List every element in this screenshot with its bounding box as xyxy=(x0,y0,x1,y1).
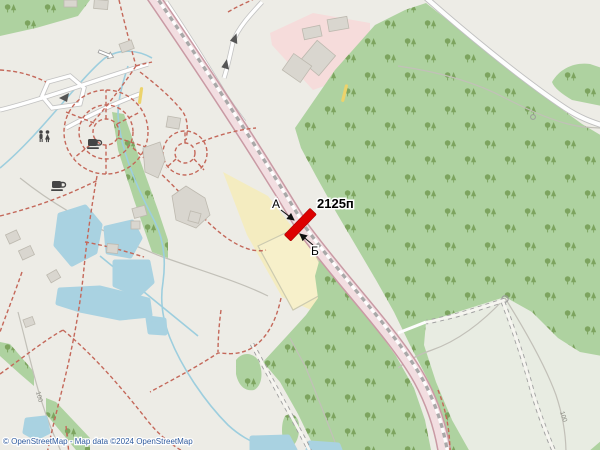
map-attribution[interactable]: © OpenStreetMap - Map data ©2024 OpenStr… xyxy=(3,437,193,446)
side-a-label: А xyxy=(272,197,280,211)
side-b-label: Б xyxy=(311,244,319,258)
map-canvas[interactable]: 100 100 2125п А Б © OpenStreetMap - Map … xyxy=(0,0,600,450)
billboard-id-label: 2125п xyxy=(317,196,354,211)
